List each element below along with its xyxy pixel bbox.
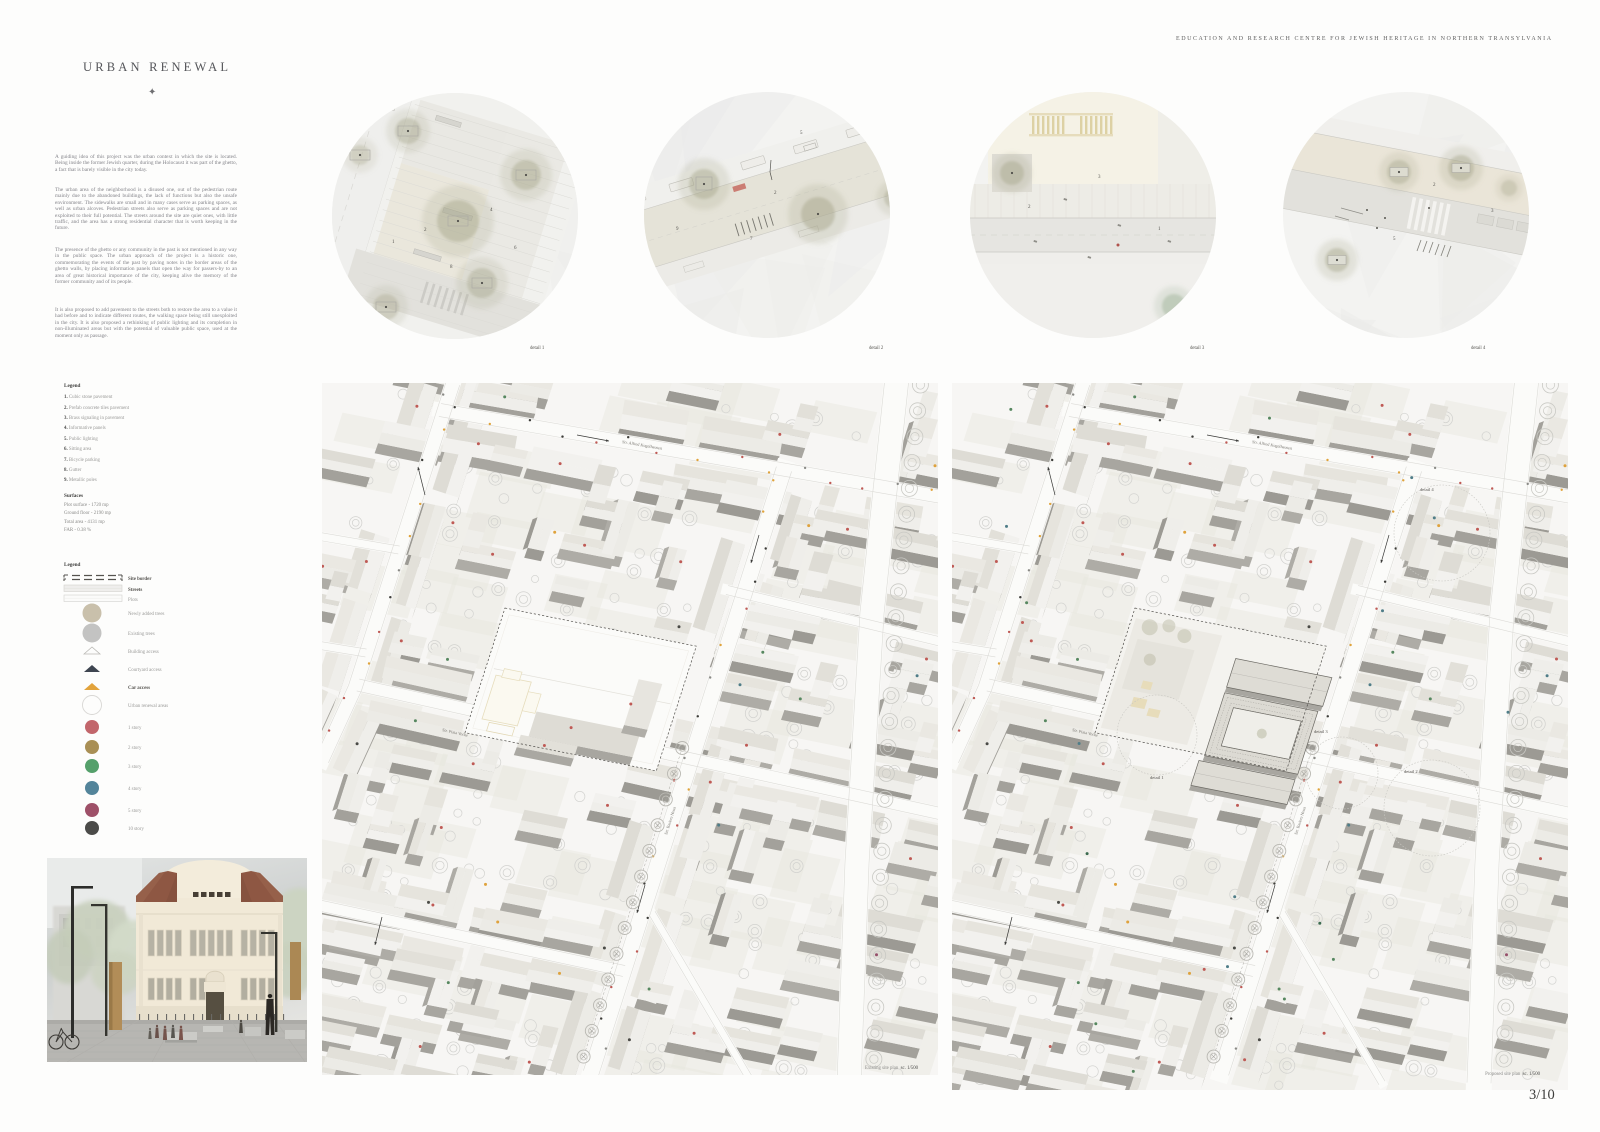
svg-text:5 story: 5 story xyxy=(128,809,142,814)
svg-text:3 story: 3 story xyxy=(128,765,142,770)
svg-text:Streets: Streets xyxy=(128,588,142,593)
svg-text:detail 3: detail 3 xyxy=(1314,729,1328,734)
svg-text:Newly added trees: Newly added trees xyxy=(128,612,164,617)
svg-text:detail 1: detail 1 xyxy=(1150,775,1164,780)
svg-text:Plots: Plots xyxy=(128,598,138,603)
svg-text:2 story: 2 story xyxy=(128,746,142,751)
svg-text:Existing trees: Existing trees xyxy=(128,632,155,637)
svg-text:Building access: Building access xyxy=(128,650,159,655)
svg-text:10 story: 10 story xyxy=(128,827,144,832)
svg-text:1 story: 1 story xyxy=(128,726,142,731)
svg-text:Car access: Car access xyxy=(128,686,150,691)
svg-text:4 story: 4 story xyxy=(128,787,142,792)
svg-text:detail 2: detail 2 xyxy=(1404,769,1418,774)
svg-text:Urban renewal areas: Urban renewal areas xyxy=(128,704,168,709)
svg-text:Courtyard access: Courtyard access xyxy=(128,668,162,673)
svg-text:Legend: Legend xyxy=(64,562,81,568)
svg-text:detail 4: detail 4 xyxy=(1420,487,1434,492)
svg-text:Site border: Site border xyxy=(128,577,152,582)
